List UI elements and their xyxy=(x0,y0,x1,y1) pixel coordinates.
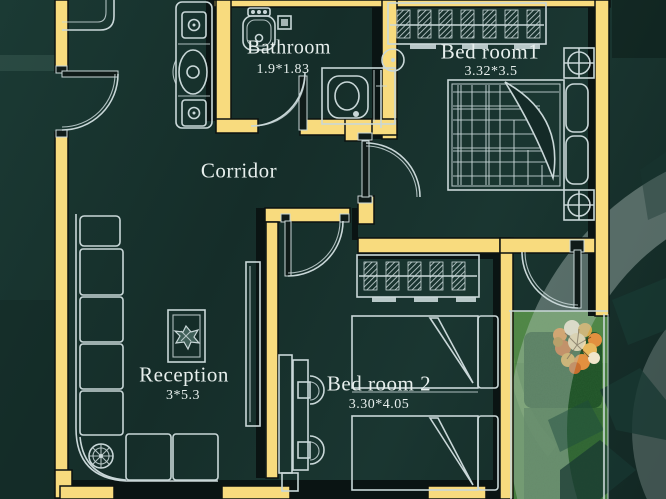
room-label-corridor: Corridor xyxy=(201,159,277,184)
floor-plan-drawing xyxy=(0,0,666,499)
wall-segment xyxy=(216,0,231,121)
reception-sofa xyxy=(76,214,218,481)
wall-segment xyxy=(222,486,290,499)
bathroom-shelf-icon xyxy=(278,16,291,29)
bedroom1-bed xyxy=(448,80,588,190)
floor-plan: Bathroom 1.9*1.83 Bed room1 3.32*3.5 Cor… xyxy=(0,0,666,499)
dresser-knob-icon xyxy=(298,376,324,404)
room-label-bedroom2: Bed room 2 xyxy=(327,372,431,397)
room-dimensions-reception: 3*5.3 xyxy=(166,388,200,404)
wall-segment xyxy=(265,208,350,222)
folded-blanket-corner xyxy=(505,82,555,178)
room-label-bedroom1: Bed room1 xyxy=(441,40,539,65)
bathroom-door-icon xyxy=(251,72,307,130)
wall-segment xyxy=(55,0,68,72)
room-dimensions-bedroom1: 3.32*3.5 xyxy=(465,64,518,80)
wall-segment xyxy=(500,238,608,253)
sofa-wheel-decor-icon xyxy=(89,444,113,468)
wall-segment xyxy=(60,486,114,499)
wall-segment xyxy=(595,0,609,316)
bedroom2-bed xyxy=(352,416,498,490)
coffee-table-plant xyxy=(168,310,205,362)
bedroom1-door-icon xyxy=(358,133,420,203)
entry-counter xyxy=(62,0,114,30)
room-dimensions-bedroom2: 3.30*4.05 xyxy=(349,397,410,413)
room-dimensions-bathroom: 1.9*1.83 xyxy=(257,62,310,78)
bedroom2-dresser xyxy=(279,355,324,491)
wall-segment xyxy=(55,132,68,474)
dresser-knob-icon xyxy=(298,436,324,464)
bedroom2-door-icon xyxy=(281,214,349,276)
wall-segment xyxy=(358,238,510,253)
wall-segment xyxy=(266,222,278,478)
pillow xyxy=(566,84,588,132)
pillow xyxy=(566,136,588,184)
room-label-bathroom: Bathroom xyxy=(247,37,331,60)
kitchen-unit xyxy=(173,2,212,128)
entrance-door-icon xyxy=(56,66,118,137)
room-label-reception: Reception xyxy=(139,363,229,388)
bedroom2-wardrobe xyxy=(357,255,479,302)
